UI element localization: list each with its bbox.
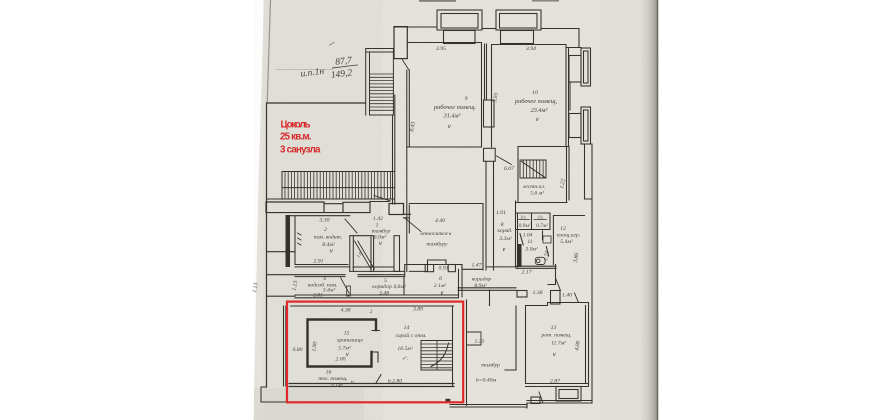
svg-text:1.47: 1.47 (472, 263, 483, 269)
svg-text:1.25: 1.25 (475, 339, 485, 345)
svg-text:b.2.80: b.2.80 (388, 379, 402, 385)
svg-text:3.89: 3.89 (412, 307, 423, 313)
svg-text:0.9м²: 0.9м² (519, 223, 531, 229)
svg-text:3.4м²: 3.4м² (322, 288, 336, 294)
svg-text:0.80: 0.80 (293, 347, 303, 353)
svg-text:2.81: 2.81 (313, 293, 323, 299)
svg-text:коряд.: коряд. (498, 227, 513, 234)
svg-text:1.04: 1.04 (523, 233, 533, 239)
svg-text:тех. помещ.: тех. помещ. (318, 376, 347, 382)
svg-text:лестн.кл.: лестн.кл. (522, 184, 546, 190)
svg-text:11: 11 (527, 239, 532, 245)
svg-text:сарай с отм.: сарай с отм. (395, 332, 426, 339)
svg-text:14: 14 (404, 325, 410, 331)
svg-text:9: 9 (465, 96, 468, 102)
svg-text:пом. водит.: пом. водит. (314, 234, 342, 241)
svg-text:3.3м²: 3.3м² (498, 236, 512, 242)
svg-text:относится к: относится к (420, 231, 452, 237)
svg-text:5.4м²: 5.4м² (560, 239, 573, 245)
svg-text:2.00: 2.00 (336, 357, 346, 363)
svg-text:3.95: 3.95 (435, 46, 446, 52)
svg-text:✓:: ✓: (402, 356, 409, 362)
svg-text:площ.игр.: площ.игр. (557, 233, 580, 239)
svg-text:коридор 4,6м²: коридор 4,6м² (372, 283, 406, 290)
svg-text:4.40: 4.40 (435, 218, 445, 224)
svg-text:10: 10 (532, 90, 538, 96)
svg-text:9.1м²: 9.1м² (331, 383, 344, 389)
svg-text:3 санузла: 3 санузла (280, 144, 321, 155)
svg-text:0.7м²: 0.7м² (536, 223, 548, 229)
svg-text:13: 13 (551, 325, 557, 331)
svg-text:рот. помещ.: рот. помещ. (540, 333, 571, 339)
svg-text:5.6 м²: 5.6 м² (530, 191, 544, 197)
svg-text:16.5м²: 16.5м² (397, 346, 413, 352)
svg-text:3.48: 3.48 (378, 291, 389, 297)
svg-text:8.9м²: 8.9м² (474, 283, 487, 289)
svg-text:23.4м²: 23.4м² (531, 107, 548, 114)
svg-text:5.7м²: 5.7м² (338, 346, 351, 352)
svg-text:хранилище: хранилище (336, 338, 364, 344)
svg-text:6.07: 6.07 (504, 166, 515, 172)
svg-text:2: 2 (324, 227, 327, 233)
svg-text:11.7м²: 11.7м² (551, 341, 566, 347)
svg-text:2.91: 2.91 (314, 259, 324, 265)
svg-text:0.91: 0.91 (439, 266, 449, 272)
svg-text:тамбур: тамбур (481, 362, 500, 369)
svg-text:2.17: 2.17 (522, 270, 533, 276)
svg-text:12: 12 (560, 226, 566, 232)
svg-text:4: 4 (323, 276, 326, 282)
svg-text:b=0.40м: b=0.40м (476, 378, 497, 384)
svg-text:6.0м²: 6.0м² (374, 235, 387, 241)
svg-text:16: 16 (326, 370, 332, 376)
svg-text:8.4м²: 8.4м² (322, 242, 335, 248)
svg-text:1.38: 1.38 (533, 290, 543, 296)
svg-text:тамбуру: тамбуру (426, 241, 448, 248)
svg-text:рабочее помещ.: рабочее помещ. (433, 104, 477, 111)
svg-text:3.0м²: 3.0м² (524, 247, 538, 253)
svg-text:11в: 11в (537, 216, 543, 220)
svg-text:рабочее помещ,: рабочее помещ, (514, 98, 558, 105)
svg-text:2.87: 2.87 (550, 379, 561, 385)
svg-text:6: 6 (439, 276, 442, 282)
svg-text:1.42: 1.42 (373, 216, 383, 222)
svg-text:1.40: 1.40 (562, 293, 572, 299)
svg-text:25 кв.м.: 25 кв.м. (280, 131, 312, 142)
svg-text:тамбур: тамбур (372, 228, 391, 235)
svg-text:Цоколь: Цоколь (281, 120, 311, 131)
svg-text:3.30: 3.30 (319, 218, 330, 224)
svg-text:2.1м²: 2.1м² (434, 283, 447, 289)
svg-text:3.94: 3.94 (525, 46, 536, 52)
svg-text:4.38: 4.38 (341, 308, 351, 314)
svg-text:31.4м²: 31.4м² (443, 113, 461, 120)
svg-text:15: 15 (344, 331, 350, 337)
svg-text:1.01: 1.01 (496, 210, 506, 216)
svg-text:коридор: коридор (472, 276, 492, 283)
svg-text:11к: 11к (520, 216, 526, 220)
